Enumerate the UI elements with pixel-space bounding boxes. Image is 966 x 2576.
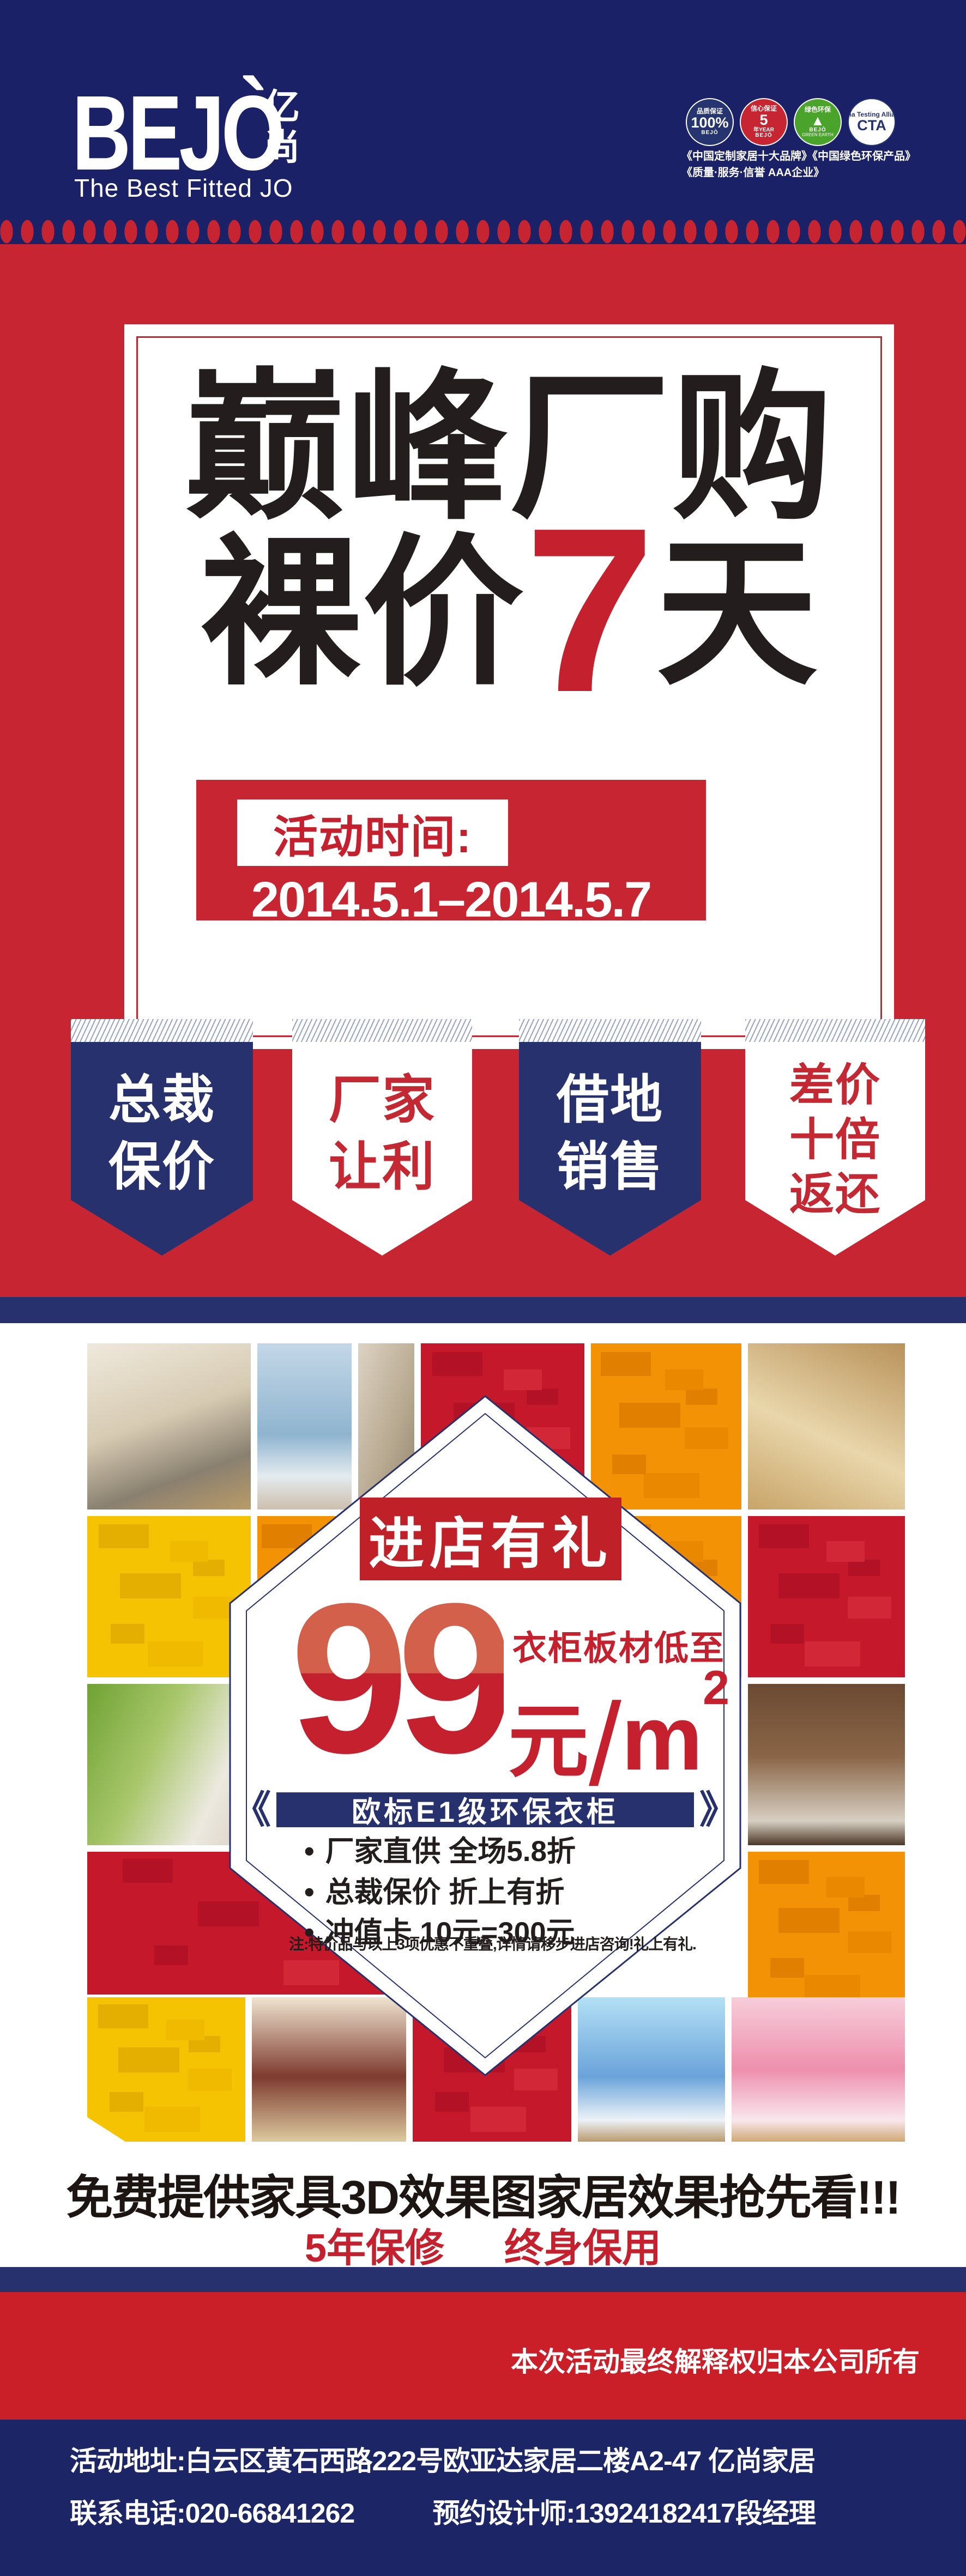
warranty-line: 5年保修 终身保用 (0, 2216, 966, 2273)
footer: 活动地址:白云区黄石西路222号欧亚达家居二楼A2-47 亿尚家居 联系电话:0… (0, 2420, 966, 2576)
dotted-divider-top (0, 219, 966, 244)
square-sup: 2 (703, 1660, 729, 1714)
bullet-icon: • (304, 1834, 315, 1869)
photo-green-livingroom (87, 1684, 251, 1845)
event-dates: 2014.5.1–2014.5.7 (196, 871, 706, 929)
credentials: 《中国定制家居十大品牌》《中国绿色环保产品》 《质量·服务·信誉 AAA企业》 (681, 148, 916, 181)
mosaic-yellow-tile (87, 1997, 245, 2142)
gallery-section: 进店有礼 99 衣柜板材低至 元/m2 《 欧标E1级环保衣柜 》 •厂家直供 … (0, 1323, 966, 2292)
green-badge: 绿色环保 ▲ BEJÒ GREEN EARTH (794, 98, 842, 146)
hero-title-line1: 巅峰厂购 (124, 363, 894, 533)
photo-walkin-closet (748, 1343, 905, 1510)
offer-hexagon: 进店有礼 99 衣柜板材低至 元/m2 《 欧标E1级环保衣柜 》 •厂家直供 … (229, 1395, 741, 2076)
footer-phone: 联系电话:020-66841262 (70, 2492, 354, 2531)
event-time-label: 活动时间: (273, 801, 472, 865)
photo-brown-livingroom (748, 1684, 905, 1845)
pennant-price-protection: 总裁 保价 (71, 1019, 253, 1256)
pennant-venue-sale: 借地 销售 (519, 1019, 701, 1256)
dotted-divider-middle (0, 1297, 966, 1323)
pennant-hatch (745, 1019, 925, 1042)
photo-pink-kids-room (732, 1997, 905, 2142)
photo-bedroom (87, 1343, 251, 1510)
footer-contacts: 联系电话:020-66841262 预约设计师:13924182417段经理 (70, 2492, 816, 2531)
pennant-price-refund: 差价 十倍 返还 (745, 1019, 925, 1256)
disclaimer-band: 本次活动最终解释权归本公司所有 (0, 2292, 966, 2420)
right-guillemet: 》 (699, 1791, 738, 1829)
e1-standard-row: 《 欧标E1级环保衣柜 》 (229, 1791, 741, 1829)
bullet-icon: • (304, 1875, 315, 1910)
brand-slogan: The Best Fitted JO (74, 173, 293, 203)
disclaimer-text: 本次活动最终解释权归本公司所有 (511, 2340, 920, 2379)
pennant-hatch (519, 1019, 701, 1042)
hero-card: 巅峰厂购 裸价7天 活动时间: 2014.5.1–2014.5.7 (124, 324, 894, 1049)
warranty-5y: 5年保修 (305, 2227, 444, 2270)
brand-logo: BEJÒ (72, 80, 281, 186)
hero-title-post: 天 (656, 523, 819, 704)
credential-line-2: 《质量·服务·信誉 AAA企业》 (681, 165, 916, 181)
brand-logo-chinese: 亿 尚 (264, 87, 300, 168)
mosaic-red-tile (748, 1516, 905, 1677)
event-time-label-box: 活动时间: (237, 799, 508, 866)
pennant-factory-discount: 厂家 让利 (292, 1019, 472, 1256)
footer-address: 活动地址:白云区黄石西路222号欧亚达家居二楼A2-47 亿尚家居 (70, 2439, 816, 2478)
footer-designer: 预约设计师:13924182417段经理 (432, 2492, 816, 2531)
pennant-hatch (71, 1019, 253, 1042)
warranty-lifetime: 终身保用 (504, 2227, 661, 2270)
dotted-divider-bottom (0, 2267, 966, 2292)
credential-line-1: 《中国定制家居十大品牌》《中国绿色环保产品》 (681, 148, 916, 165)
brand-cn-top: 亿 (264, 87, 300, 128)
event-date-box: 活动时间: 2014.5.1–2014.5.7 (196, 780, 706, 920)
certification-badges: 品质保证 100% BEJÒ 信心保证 5 年YEAR BEJÒ 绿色环保 ▲ … (686, 98, 896, 146)
mosaic-yellow-tile (87, 1516, 251, 1677)
mosaic-orange-tile (748, 1852, 905, 2011)
meter-unit: m (621, 1687, 703, 1789)
header: BEJÒ 亿 尚 The Best Fitted JO 品质保证 100% BE… (0, 0, 966, 244)
poster-page: BEJÒ 亿 尚 The Best Fitted JO 品质保证 100% BE… (0, 0, 966, 2576)
tree-icon: ▲ (811, 113, 825, 128)
hero-title-line2: 裸价7天 (124, 533, 894, 694)
quality-badge: 品质保证 100% BEJÒ (686, 98, 734, 146)
hero-title-pre: 裸价 (200, 523, 524, 704)
left-guillemet: 《 (233, 1791, 271, 1829)
pennant-hatch (292, 1019, 472, 1042)
bullet-item: •总裁保价 折上有折 (304, 1875, 576, 1910)
cta-badge: China Testing Alliance CTA (848, 98, 896, 146)
yuan-unit: 元 (508, 1697, 589, 1787)
price-number: 99 (290, 1589, 504, 1768)
hero-title-number: 7 (524, 480, 656, 741)
offer-note: 注:特价品与以上3项优惠不重叠,详情请移步进店咨询!礼上有礼. (289, 1932, 714, 1954)
bullet-item: •厂家直供 全场5.8折 (304, 1834, 576, 1869)
confidence-badge: 信心保证 5 年YEAR BEJÒ (740, 98, 788, 146)
hero-section: 巅峰厂购 裸价7天 活动时间: 2014.5.1–2014.5.7 总裁 保价 … (0, 244, 966, 1297)
brand-cn-bottom: 尚 (264, 128, 300, 168)
e1-standard-bar: 欧标E1级环保衣柜 (276, 1792, 694, 1827)
